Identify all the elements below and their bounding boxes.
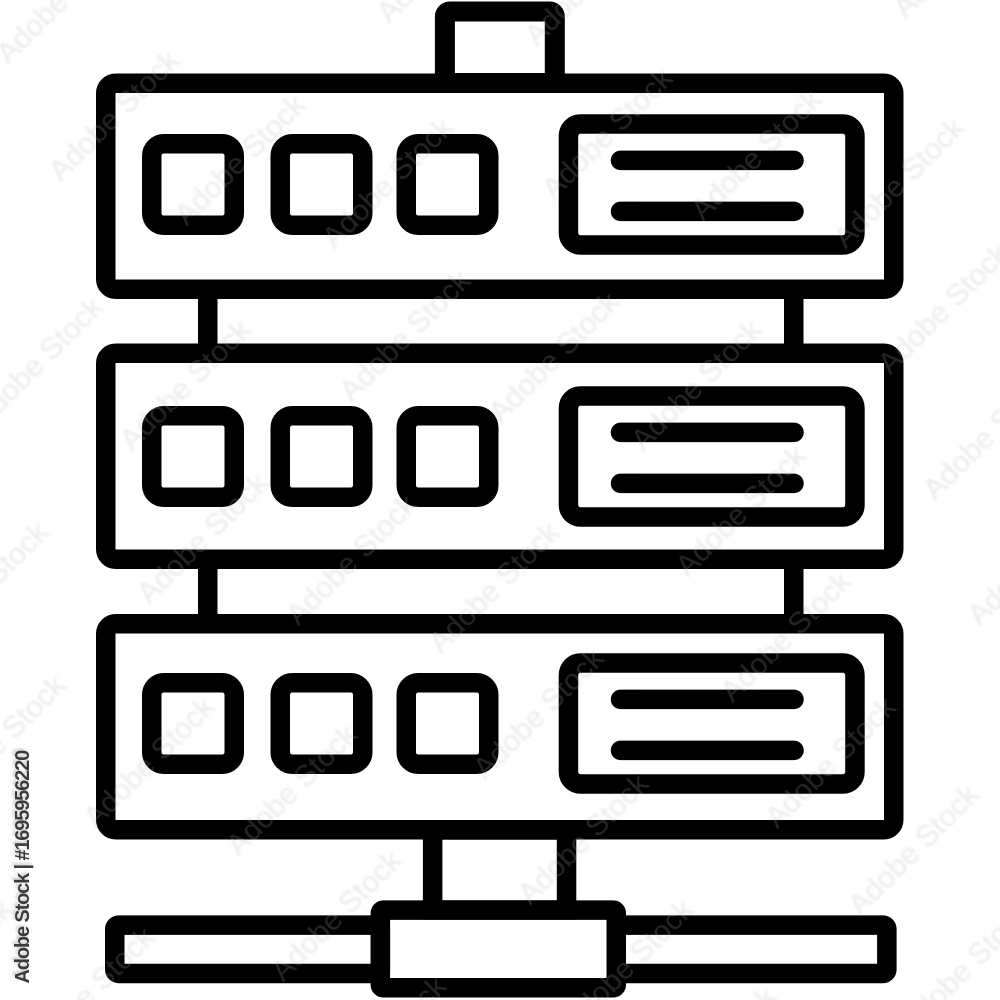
svg-text:Adobe Stock | #1695956220: Adobe Stock | #1695956220 — [12, 750, 34, 984]
